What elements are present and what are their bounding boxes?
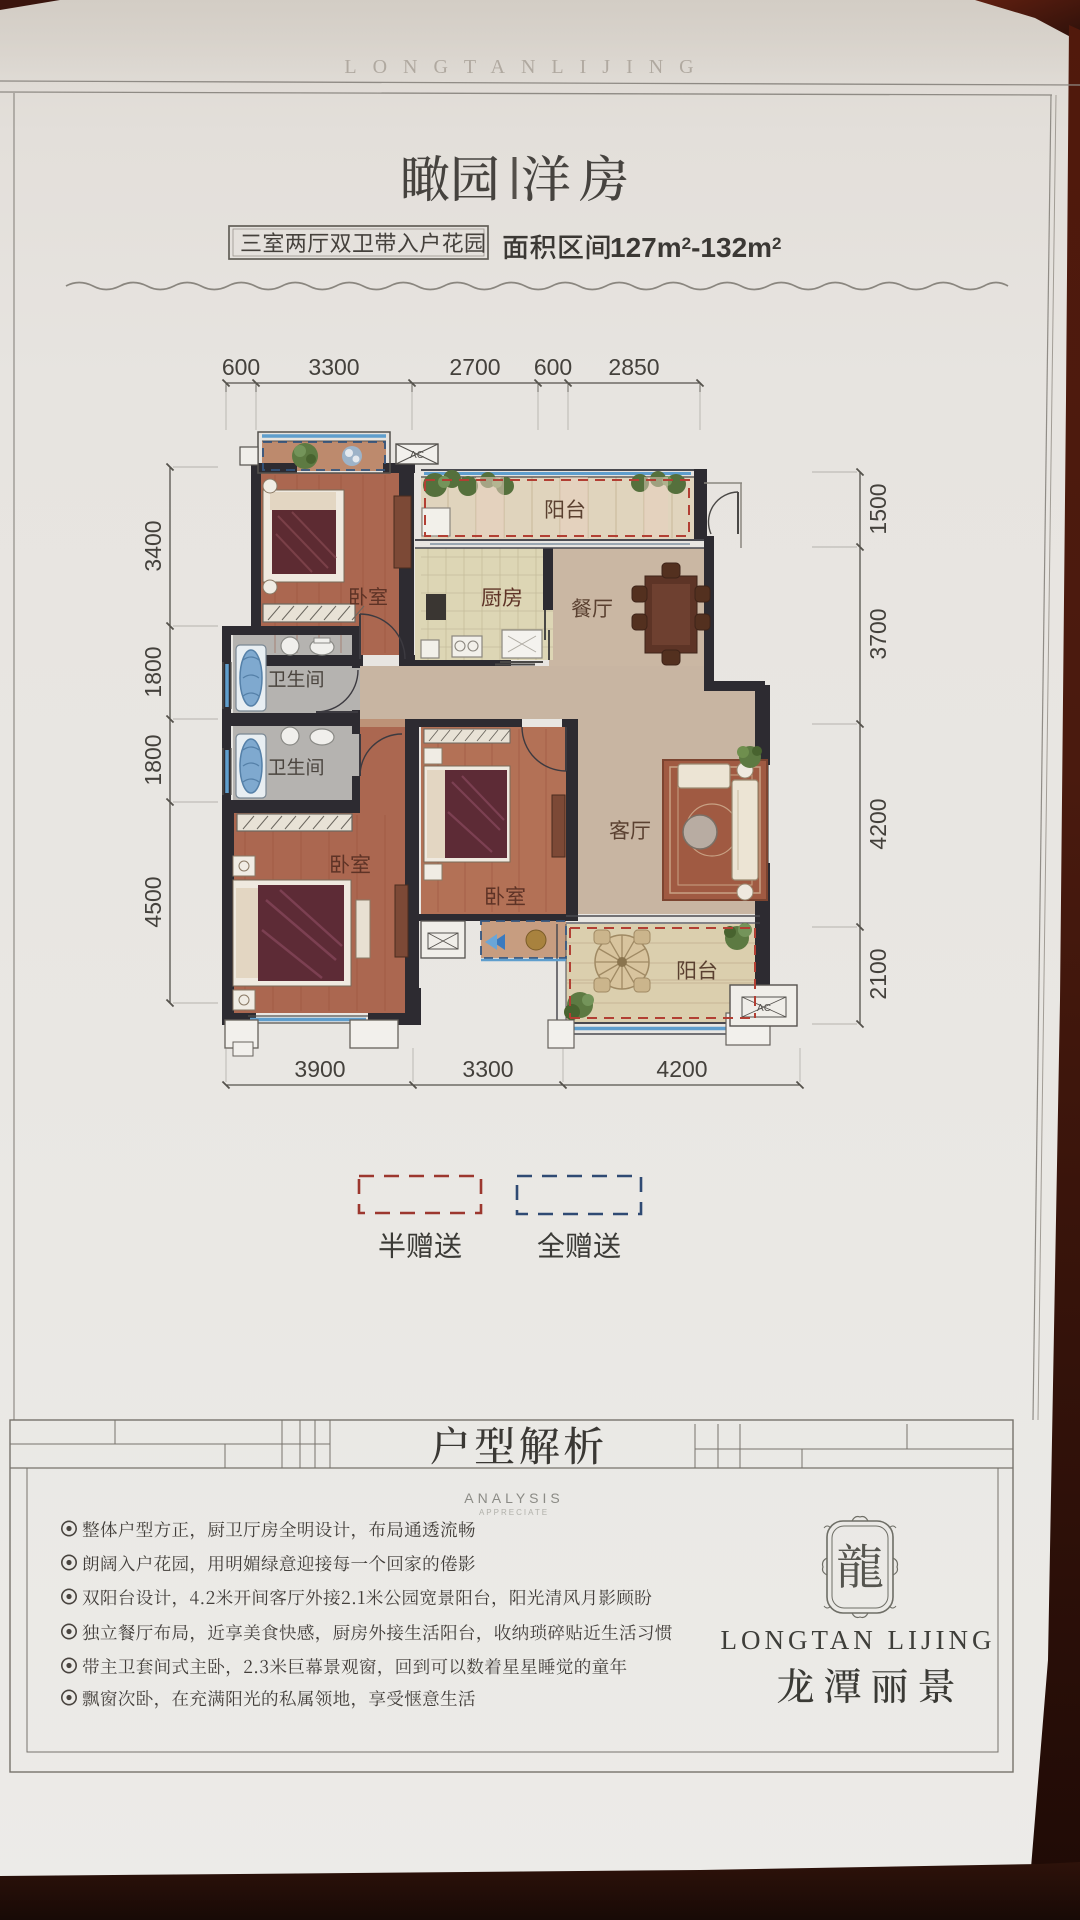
svg-text:AC: AC	[757, 1003, 771, 1014]
svg-text:1800: 1800	[140, 734, 166, 785]
svg-text:2700: 2700	[449, 354, 500, 380]
svg-text:600: 600	[534, 354, 572, 380]
svg-text:3700: 3700	[865, 608, 891, 659]
svg-text:3300: 3300	[462, 1056, 513, 1082]
svg-text:ANALYSIS: ANALYSIS	[464, 1490, 563, 1506]
svg-text:APPRECIATE: APPRECIATE	[479, 1508, 549, 1517]
svg-text:4200: 4200	[865, 798, 891, 849]
svg-text:1800: 1800	[140, 646, 166, 697]
svg-text:4200: 4200	[656, 1056, 707, 1082]
svg-text:2100: 2100	[865, 948, 891, 999]
svg-text:3400: 3400	[140, 520, 166, 571]
svg-text:3300: 3300	[308, 354, 359, 380]
svg-text:LONGTAN LIJING: LONGTAN LIJING	[720, 1625, 995, 1655]
svg-text:1500: 1500	[865, 483, 891, 534]
svg-text:4500: 4500	[140, 876, 166, 927]
svg-text:127m2-132m2: 127m2-132m2	[610, 232, 782, 263]
svg-text:2850: 2850	[608, 354, 659, 380]
svg-text:AC: AC	[410, 450, 424, 461]
svg-text:LONGTANLIJING: LONGTANLIJING	[344, 56, 709, 78]
svg-text:600: 600	[222, 354, 260, 380]
svg-text:3900: 3900	[294, 1056, 345, 1082]
